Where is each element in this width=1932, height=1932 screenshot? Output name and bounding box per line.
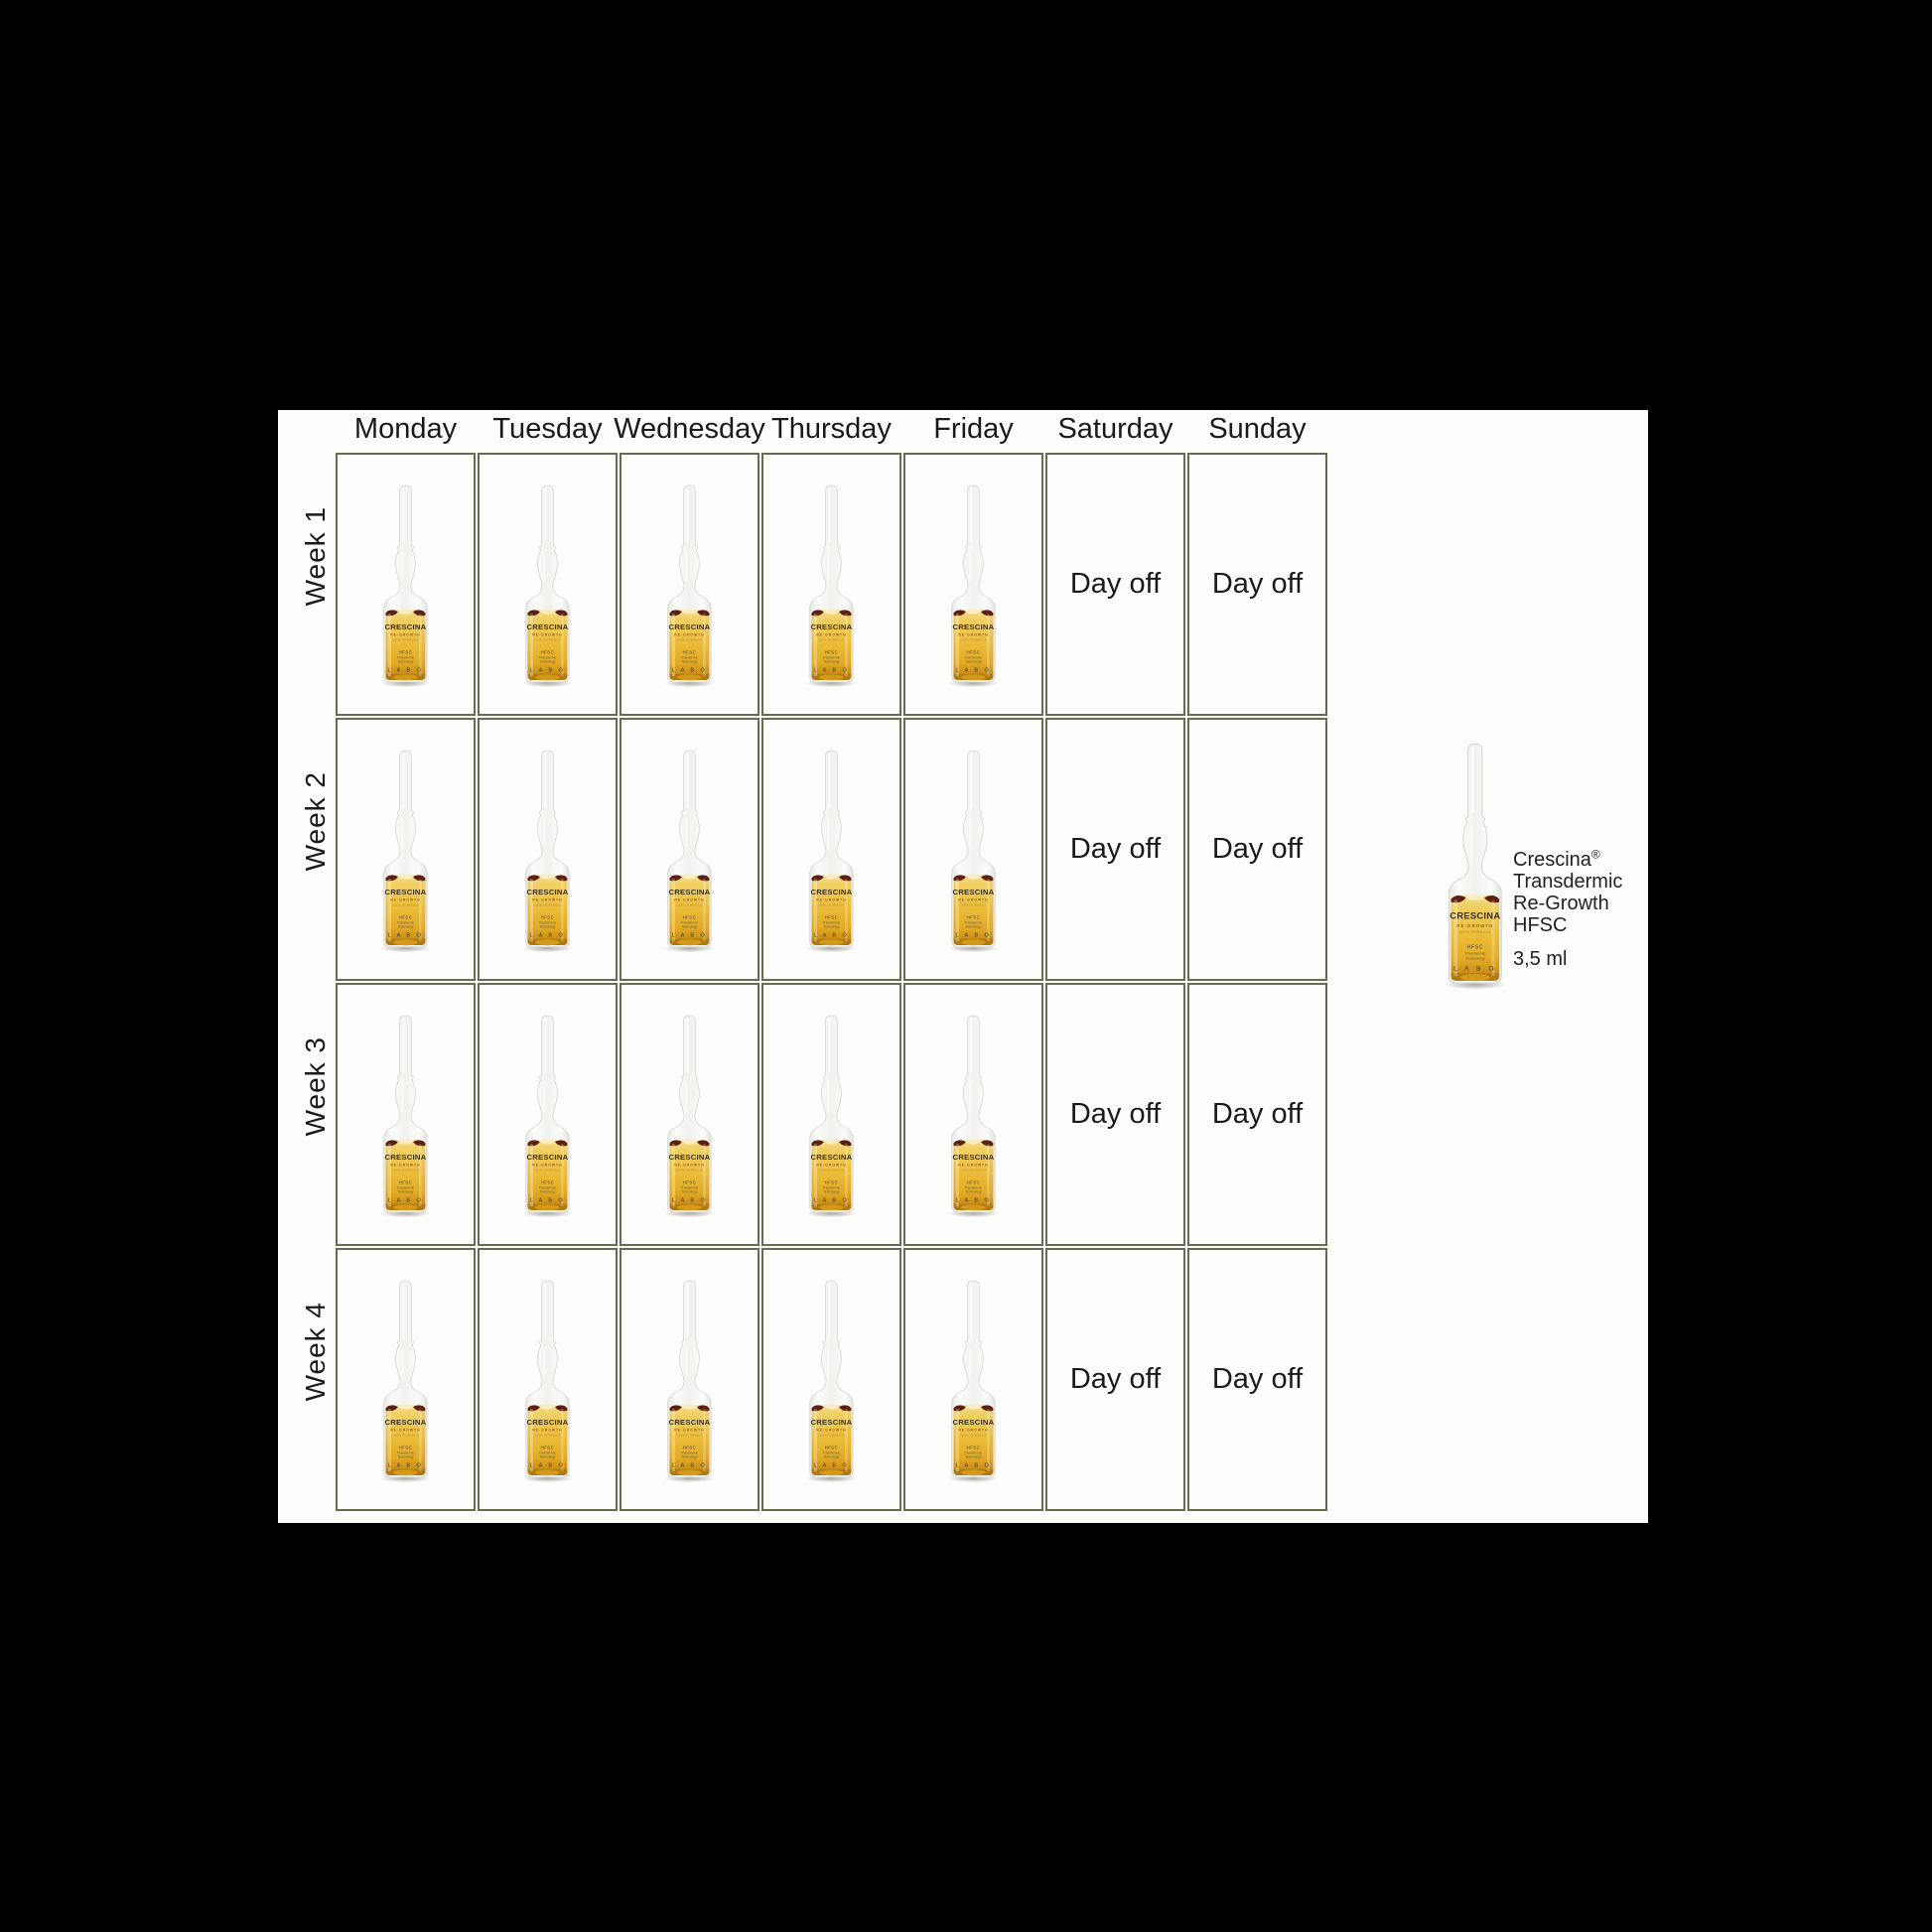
day-off-label: Day off	[1070, 833, 1161, 866]
infographic-canvas: MondayTuesdayWednesdayThursdayFridaySatu…	[0, 0, 1932, 1932]
ampoule-icon	[660, 1010, 719, 1220]
week-label-text: Week 4	[300, 1302, 332, 1401]
week-label-text: Week 2	[300, 771, 332, 871]
cell-week4-tuesday	[478, 1248, 618, 1511]
week-label-4: Week 4	[298, 1248, 334, 1511]
ampoule-icon	[944, 480, 1003, 690]
day-header-monday: Monday	[336, 410, 476, 451]
ampoule-icon	[1440, 737, 1511, 993]
cell-week4-sunday: Day off	[1187, 1248, 1327, 1511]
cell-week3-thursday	[761, 983, 901, 1246]
cell-week3-tuesday	[478, 983, 618, 1246]
product-line-hfsc: HFSC	[1513, 914, 1622, 936]
ampoule-icon	[518, 1275, 577, 1485]
cell-week2-wednesday	[620, 718, 759, 981]
cell-week2-monday	[336, 718, 476, 981]
cell-week1-sunday: Day off	[1187, 453, 1327, 716]
day-off-label: Day off	[1212, 833, 1303, 866]
ampoule-icon	[518, 1010, 577, 1220]
product-brand: Crescina®	[1513, 849, 1622, 871]
cell-week1-monday	[336, 453, 476, 716]
schedule-panel: MondayTuesdayWednesdayThursdayFridaySatu…	[278, 410, 1648, 1523]
cell-week3-friday	[903, 983, 1043, 1246]
ampoule-icon	[802, 1275, 861, 1485]
day-off-label: Day off	[1212, 568, 1303, 601]
table-corner	[298, 410, 334, 451]
product-brand-name: Crescina	[1513, 849, 1591, 871]
day-off-label: Day off	[1070, 1098, 1161, 1131]
ampoule-icon	[376, 1010, 435, 1220]
week-label-text: Week 3	[300, 1036, 332, 1136]
cell-week3-saturday: Day off	[1045, 983, 1185, 1246]
week-label-1: Week 1	[298, 453, 334, 716]
day-header-friday: Friday	[903, 410, 1043, 451]
product-volume: 3,5 ml	[1513, 948, 1622, 970]
cell-week2-saturday: Day off	[1045, 718, 1185, 981]
cell-week1-wednesday	[620, 453, 759, 716]
cell-week2-tuesday	[478, 718, 618, 981]
ampoule-icon	[944, 1010, 1003, 1220]
day-off-label: Day off	[1070, 1363, 1161, 1396]
ampoule-icon	[376, 480, 435, 690]
day-header-thursday: Thursday	[761, 410, 901, 451]
ampoule-icon	[518, 480, 577, 690]
week-label-3: Week 3	[298, 983, 334, 1246]
ampoule-icon	[518, 745, 577, 955]
product-ampoule-image	[1440, 737, 1511, 993]
ampoule-icon	[376, 745, 435, 955]
cell-week1-saturday: Day off	[1045, 453, 1185, 716]
cell-week2-sunday: Day off	[1187, 718, 1327, 981]
week-label-2: Week 2	[298, 718, 334, 981]
registered-trademark: ®	[1591, 847, 1600, 861]
cell-week3-sunday: Day off	[1187, 983, 1327, 1246]
cell-week2-friday	[903, 718, 1043, 981]
ampoule-icon	[802, 480, 861, 690]
cell-week3-wednesday	[620, 983, 759, 1246]
day-header-saturday: Saturday	[1045, 410, 1185, 451]
day-header-sunday: Sunday	[1187, 410, 1327, 451]
schedule-table: MondayTuesdayWednesdayThursdayFridaySatu…	[298, 410, 1327, 1511]
cell-week4-thursday	[761, 1248, 901, 1511]
day-header-wednesday: Wednesday	[620, 410, 759, 451]
ampoule-icon	[376, 1275, 435, 1485]
ampoule-icon	[802, 1010, 861, 1220]
week-label-text: Week 1	[300, 506, 332, 606]
ampoule-icon	[944, 1275, 1003, 1485]
cell-week3-monday	[336, 983, 476, 1246]
cell-week4-friday	[903, 1248, 1043, 1511]
day-off-label: Day off	[1070, 568, 1161, 601]
ampoule-icon	[660, 480, 719, 690]
day-off-label: Day off	[1212, 1098, 1303, 1131]
cell-week1-friday	[903, 453, 1043, 716]
ampoule-icon	[660, 745, 719, 955]
ampoule-icon	[944, 745, 1003, 955]
ampoule-icon	[660, 1275, 719, 1485]
cell-week4-monday	[336, 1248, 476, 1511]
day-off-label: Day off	[1212, 1363, 1303, 1396]
product-line-regrowth: Re-Growth	[1513, 893, 1622, 914]
cell-week1-tuesday	[478, 453, 618, 716]
cell-week4-saturday: Day off	[1045, 1248, 1185, 1511]
cell-week1-thursday	[761, 453, 901, 716]
product-line-transdermic: Transdermic	[1513, 871, 1622, 893]
cell-week4-wednesday	[620, 1248, 759, 1511]
day-header-tuesday: Tuesday	[478, 410, 618, 451]
cell-week2-thursday	[761, 718, 901, 981]
ampoule-icon	[802, 745, 861, 955]
product-legend: Crescina® Transdermic Re-Growth HFSC 3,5…	[1513, 849, 1622, 970]
